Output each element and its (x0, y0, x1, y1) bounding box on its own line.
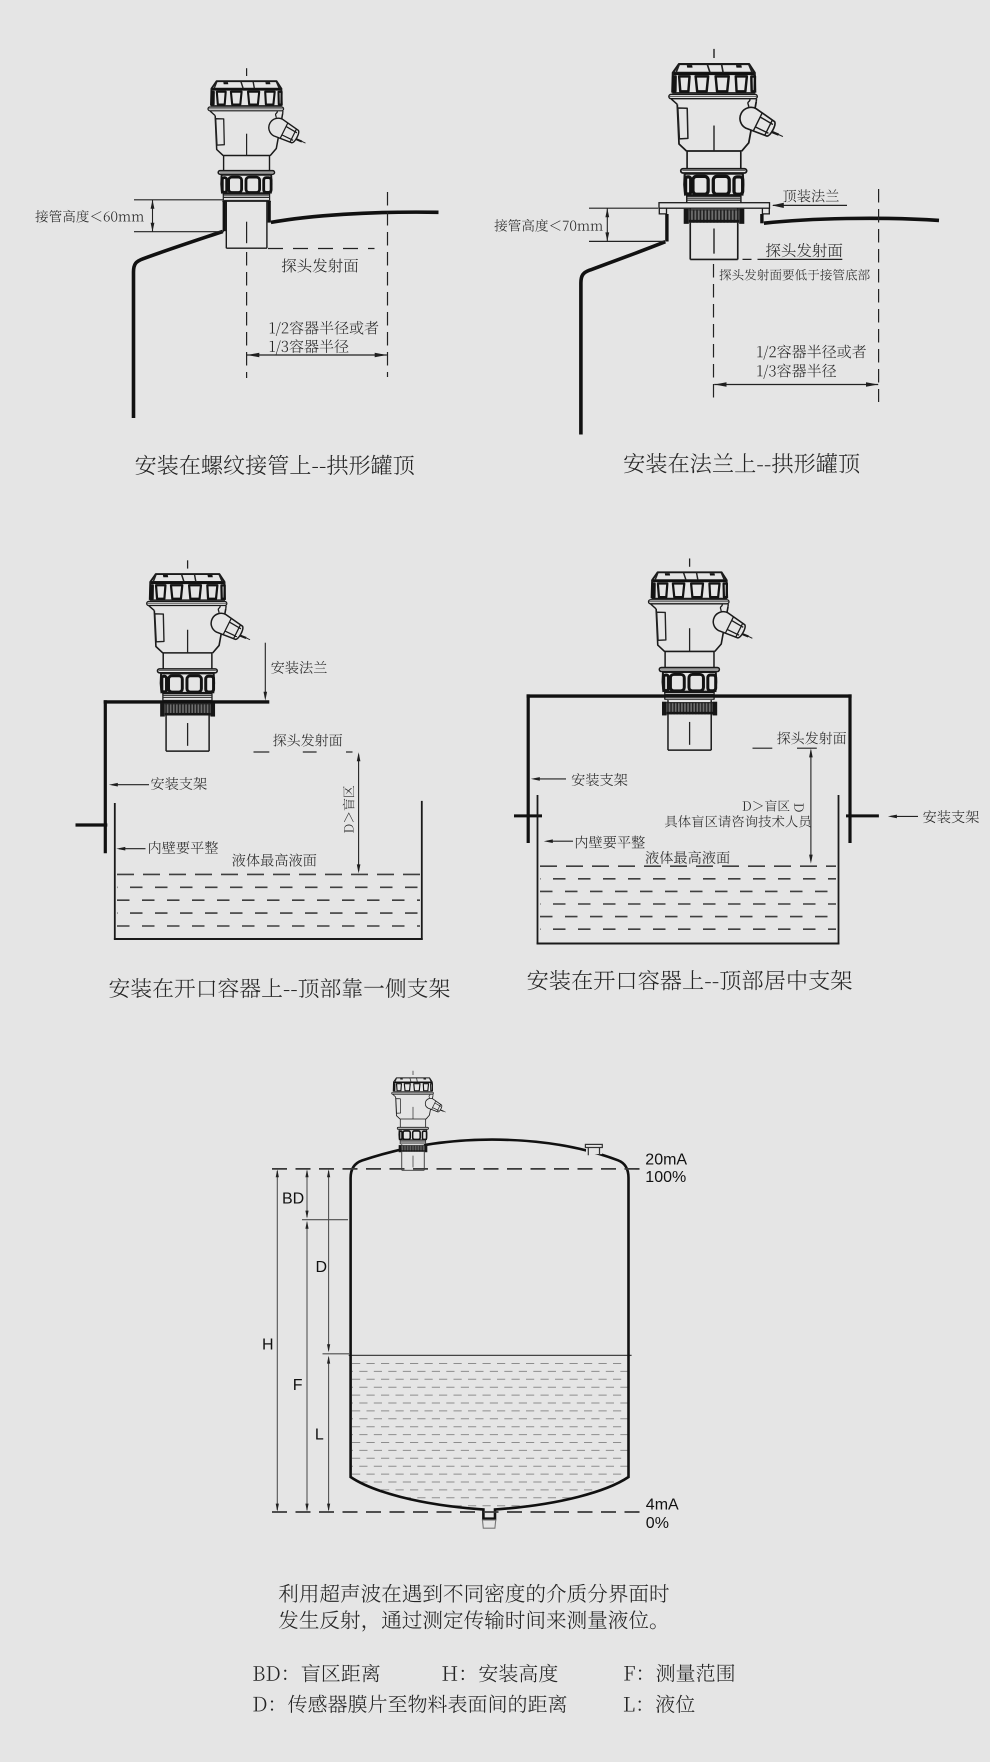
svg-text:0%: 0% (646, 1515, 669, 1532)
svg-text:20mA: 20mA (645, 1151, 687, 1168)
svg-text:4mA: 4mA (646, 1497, 679, 1514)
svg-text:D: D (316, 1259, 328, 1276)
svg-text:100%: 100% (645, 1169, 686, 1186)
svg-text:L: L (315, 1427, 324, 1444)
svg-text:F: F (293, 1377, 303, 1394)
svg-text:H: H (262, 1336, 274, 1353)
svg-text:BD: BD (282, 1190, 304, 1207)
